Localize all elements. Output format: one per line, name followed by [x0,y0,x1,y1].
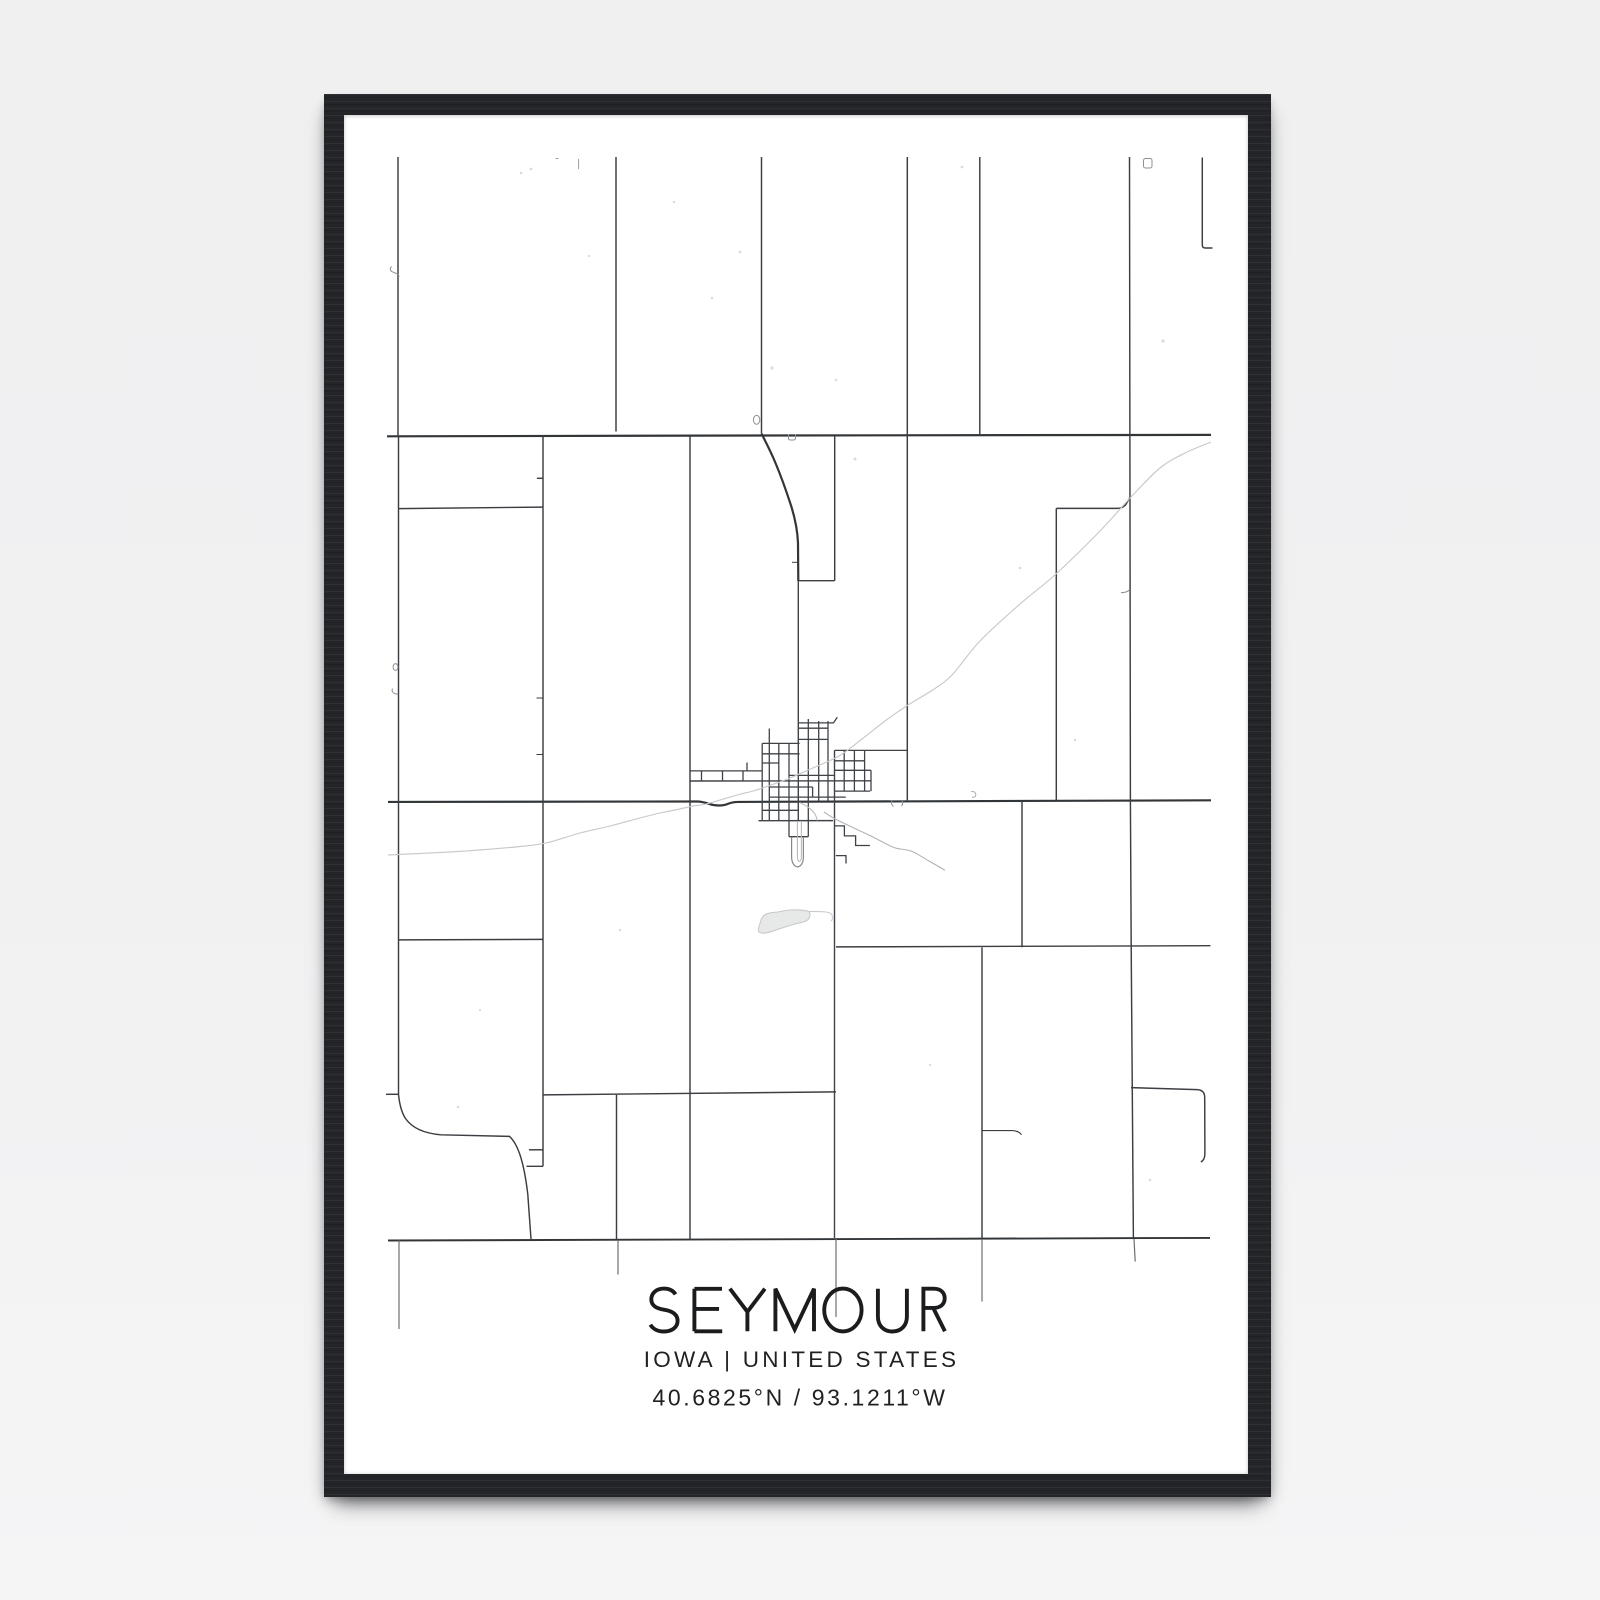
svg-text:40.6825°N / 93.1211°W: 40.6825°N / 93.1211°W [652,1385,947,1411]
svg-text:IOWA | UNITED STATES: IOWA | UNITED STATES [644,1347,959,1372]
